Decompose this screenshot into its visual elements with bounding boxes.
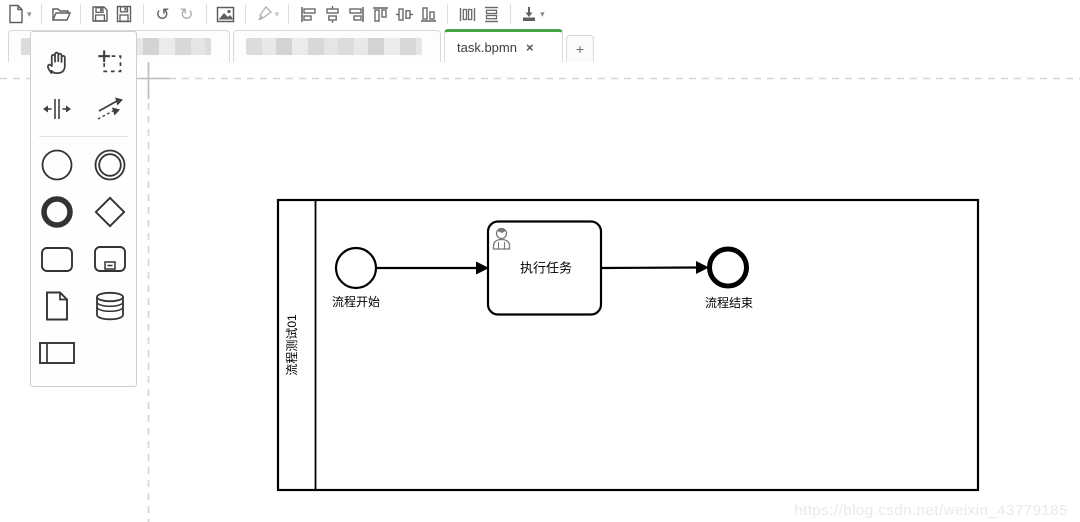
tab-bar: task.bpmn × + <box>0 28 1080 62</box>
space-tool-icon <box>42 96 72 122</box>
start-event-shape[interactable] <box>336 248 376 288</box>
save-as-icon <box>115 5 133 23</box>
create-start-event[interactable] <box>31 141 84 188</box>
align-left-button[interactable] <box>296 2 320 26</box>
undo-button[interactable]: ↺ <box>151 2 175 26</box>
hand-icon <box>43 48 71 76</box>
new-tab-button[interactable]: + <box>566 35 594 62</box>
new-file-icon <box>7 4 25 24</box>
distribute-vertical-icon <box>483 6 500 23</box>
create-data-store[interactable] <box>84 282 137 329</box>
plus-icon: + <box>576 41 584 57</box>
distribute-vertical-button[interactable] <box>479 2 503 26</box>
save-button[interactable] <box>88 2 112 26</box>
toolbar-separator <box>206 4 207 24</box>
pool-shape[interactable] <box>278 200 978 490</box>
bpmn-diagram: 流程测试01 流程开始 执行任务 流程结束 <box>0 62 1080 522</box>
toolbar-separator <box>245 4 246 24</box>
toolbar-separator <box>447 4 448 24</box>
image-icon <box>216 6 235 23</box>
palette-separator <box>39 136 128 137</box>
align-vertical-center-icon <box>324 6 341 23</box>
toolbar-separator <box>80 4 81 24</box>
deploy-download-icon <box>520 5 538 23</box>
start-event-label[interactable]: 流程开始 <box>332 294 380 309</box>
end-event-shape[interactable] <box>710 249 747 286</box>
tab-label: task.bpmn <box>457 40 517 55</box>
user-task-label[interactable]: 执行任务 <box>520 261 572 276</box>
format-painter-button[interactable]: ▾ <box>253 2 282 26</box>
data-object-icon <box>44 290 70 322</box>
global-connect-tool[interactable] <box>84 85 137 132</box>
undo-icon: ↺ <box>155 6 169 23</box>
participant-pool-icon <box>38 340 76 366</box>
open-folder-icon <box>51 5 71 23</box>
create-data-object[interactable] <box>31 282 84 329</box>
paint-brush-icon <box>255 5 273 23</box>
deploy-caret-icon[interactable]: ▾ <box>540 10 545 19</box>
lasso-tool[interactable] <box>84 38 137 85</box>
create-end-event[interactable] <box>31 188 84 235</box>
distribute-horizontal-button[interactable] <box>455 2 479 26</box>
task-icon <box>39 244 75 274</box>
new-file-button[interactable]: ▾ <box>5 2 34 26</box>
format-painter-caret-icon[interactable]: ▾ <box>275 10 280 19</box>
sequence-flow-2[interactable] <box>602 268 698 269</box>
data-store-icon <box>94 291 126 321</box>
align-left-icon <box>300 6 317 23</box>
align-horizontal-center-button[interactable] <box>392 2 416 26</box>
create-participant-pool[interactable] <box>31 329 84 376</box>
create-gateway[interactable] <box>84 188 137 235</box>
end-event-label[interactable]: 流程结束 <box>705 295 753 310</box>
close-icon[interactable]: × <box>526 40 534 55</box>
deploy-button[interactable]: ▾ <box>518 2 547 26</box>
toolbar-separator <box>510 4 511 24</box>
align-bottom-icon <box>420 6 437 23</box>
palette <box>30 31 137 387</box>
watermark-text: https://blog.csdn.net/weixin_43779185 <box>794 502 1068 519</box>
redo-icon: ↻ <box>179 6 193 23</box>
tab-redacted-2[interactable] <box>233 30 441 62</box>
connect-icon <box>95 95 125 123</box>
redacted-tab-label <box>246 38 422 55</box>
export-image-button[interactable] <box>214 2 238 26</box>
align-top-icon <box>372 6 389 23</box>
toolbar-separator <box>143 4 144 24</box>
redo-button[interactable]: ↻ <box>175 2 199 26</box>
align-bottom-button[interactable] <box>416 2 440 26</box>
hand-tool[interactable] <box>31 38 84 85</box>
sub-process-icon <box>92 244 128 274</box>
pool-label[interactable]: 流程测试01 <box>284 314 299 376</box>
save-icon <box>91 5 109 23</box>
start-event-icon <box>40 148 74 182</box>
tab-task-bpmn[interactable]: task.bpmn × <box>444 29 563 62</box>
toolbar: ▾ ↺ <box>0 0 1080 28</box>
align-top-button[interactable] <box>368 2 392 26</box>
toolbar-separator <box>288 4 289 24</box>
end-event-icon <box>40 195 74 229</box>
lasso-icon <box>96 48 124 76</box>
intermediate-event-icon <box>93 148 127 182</box>
distribute-horizontal-icon <box>459 6 476 23</box>
open-file-button[interactable] <box>49 2 73 26</box>
save-as-button[interactable] <box>112 2 136 26</box>
create-intermediate-event[interactable] <box>84 141 137 188</box>
new-file-caret-icon[interactable]: ▾ <box>27 10 32 19</box>
create-sub-process[interactable] <box>84 235 137 282</box>
align-right-button[interactable] <box>344 2 368 26</box>
space-tool[interactable] <box>31 85 84 132</box>
diagram-canvas[interactable]: (0, 0) 流程测试01 流程开始 <box>0 62 1080 522</box>
align-right-icon <box>348 6 365 23</box>
palette-empty-cell <box>84 329 137 376</box>
gateway-icon <box>92 194 128 230</box>
align-horizontal-center-icon <box>396 6 413 23</box>
align-vertical-center-button[interactable] <box>320 2 344 26</box>
bpmn-editor-window: ▾ ↺ <box>0 0 1080 522</box>
create-task[interactable] <box>31 235 84 282</box>
toolbar-separator <box>41 4 42 24</box>
